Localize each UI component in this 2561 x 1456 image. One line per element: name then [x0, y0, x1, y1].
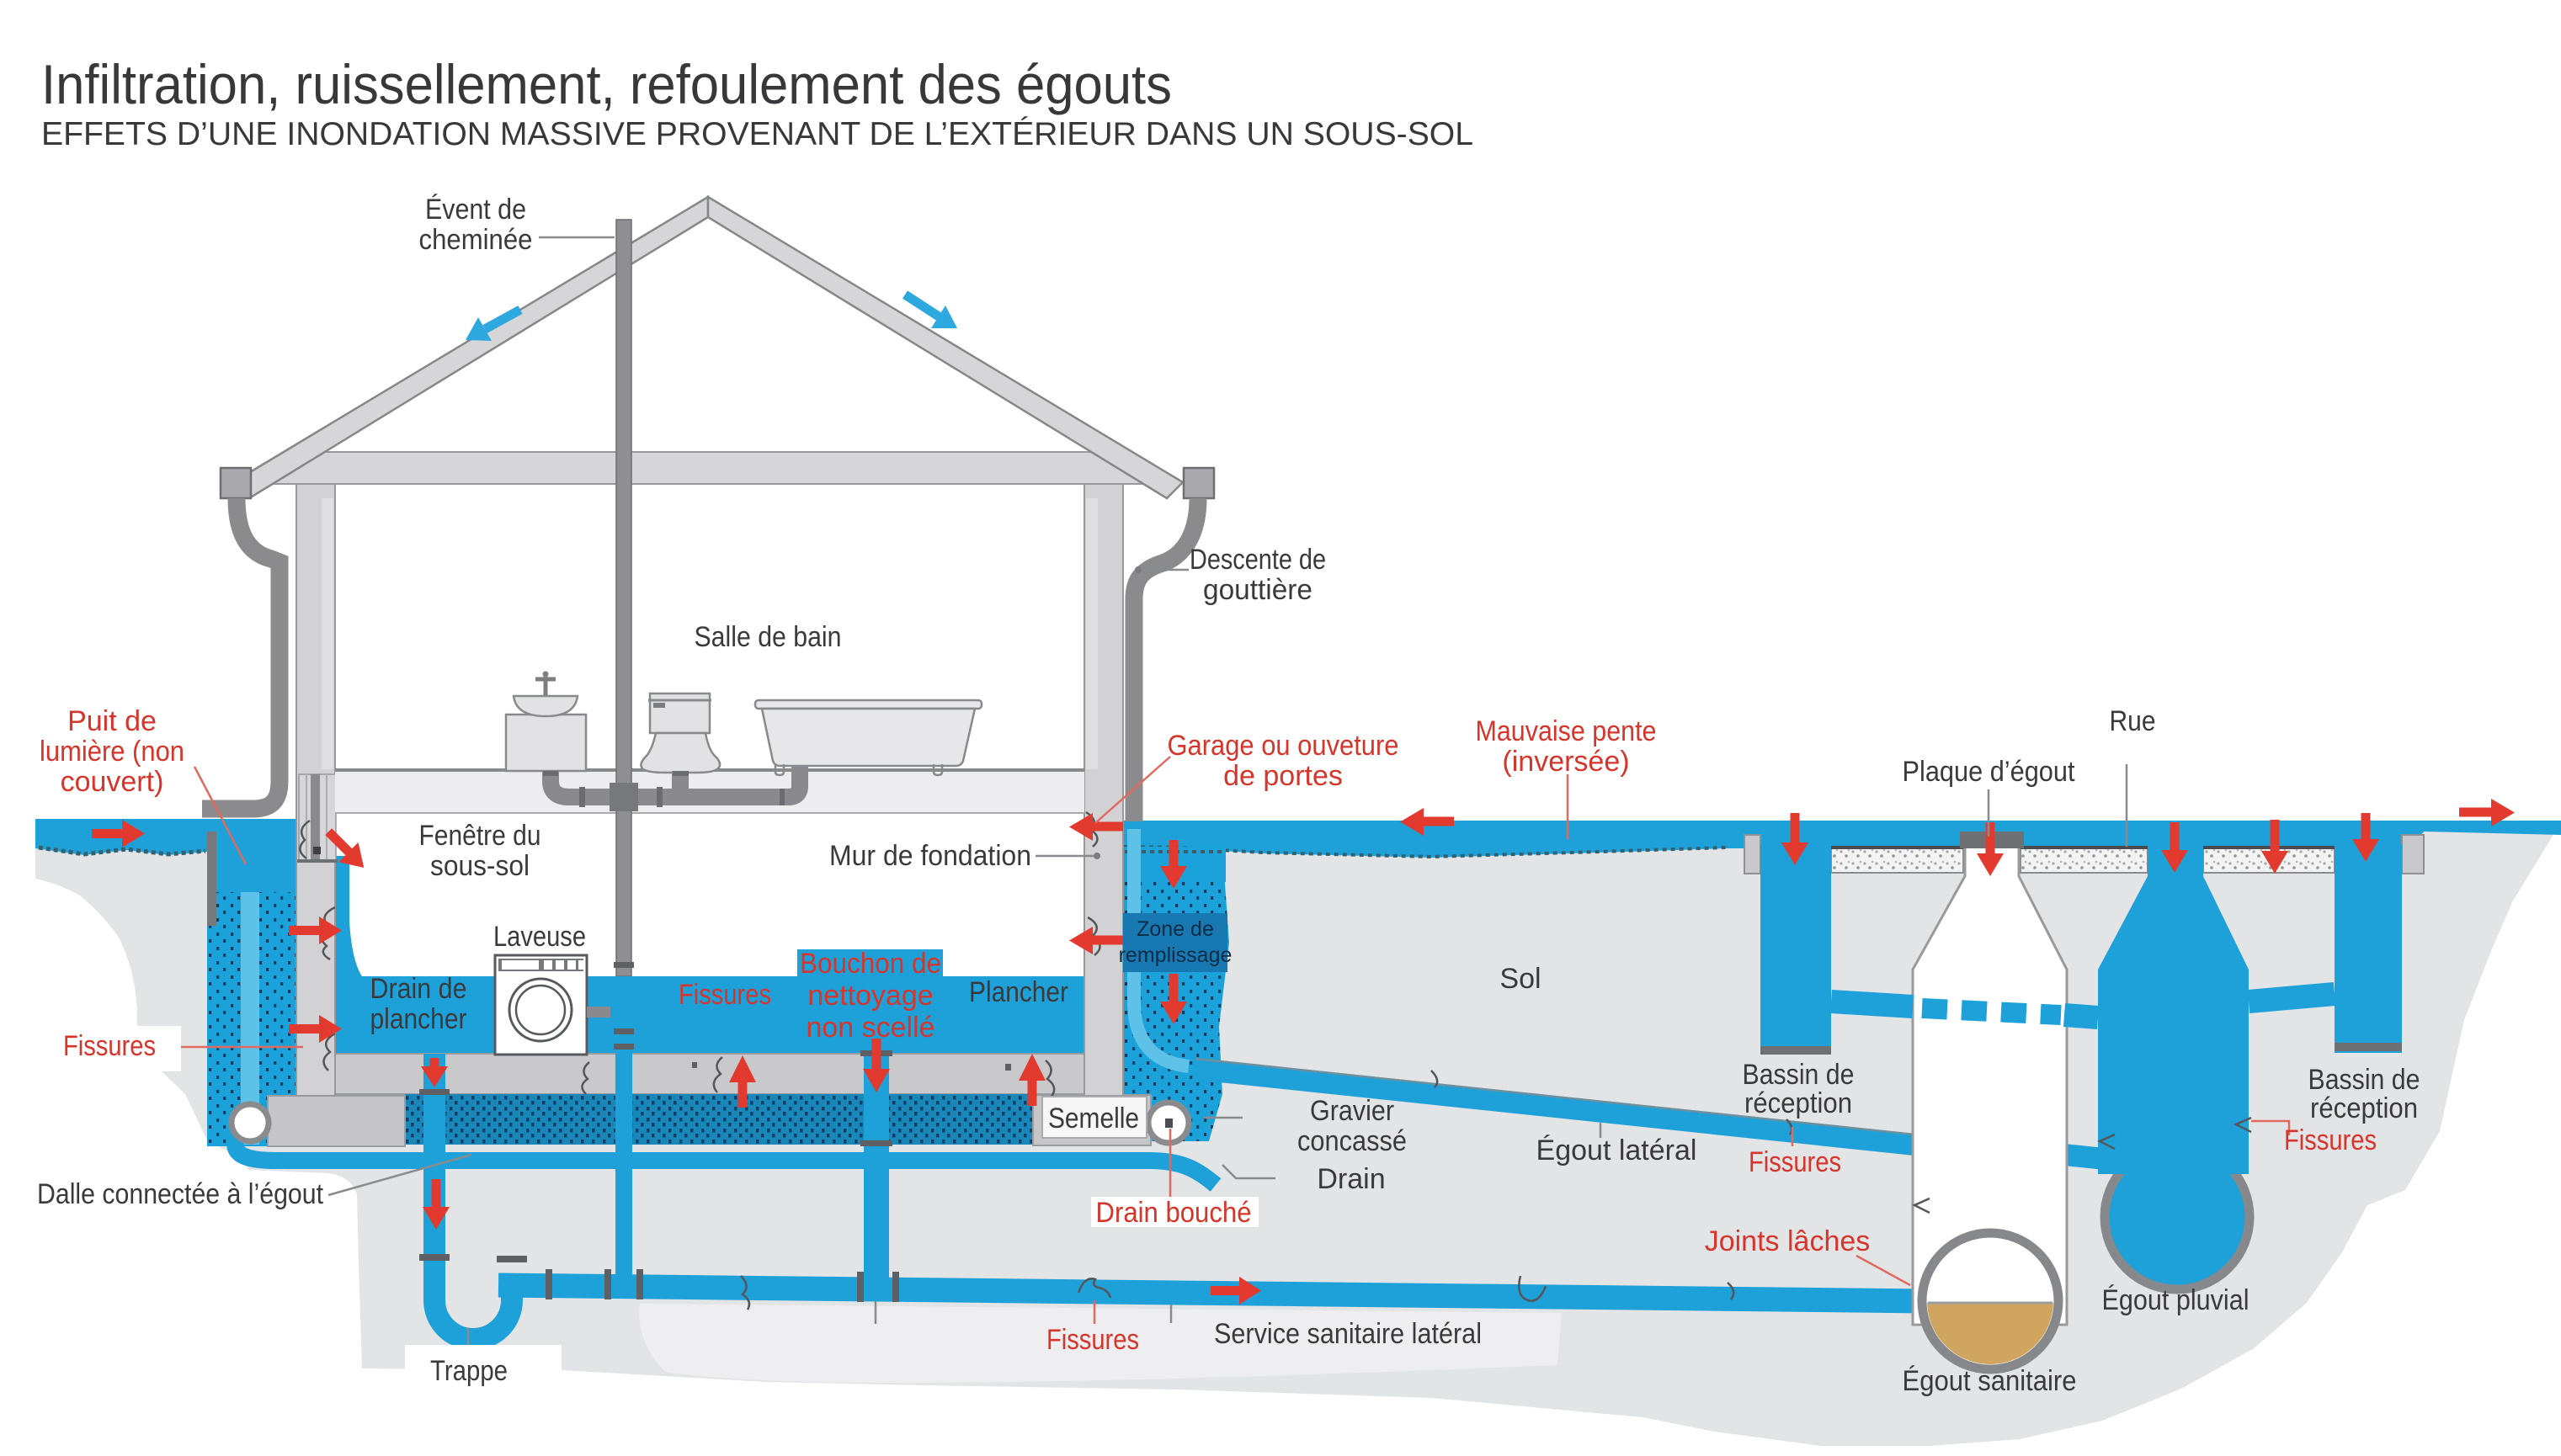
svg-text:Infiltration, ruissellement, r: Infiltration, ruissellement, refoulement… — [41, 53, 1172, 115]
svg-text:Évent de: Évent de — [425, 194, 526, 226]
svg-text:Bouchon de: Bouchon de — [800, 948, 941, 980]
svg-text:Descente de: Descente de — [1190, 544, 1326, 576]
svg-text:plancher: plancher — [370, 1003, 467, 1035]
svg-text:réception: réception — [1744, 1087, 1852, 1119]
svg-text:gouttière: gouttière — [1203, 574, 1312, 606]
svg-text:Drain bouché: Drain bouché — [1096, 1197, 1252, 1229]
svg-text:lumière (non: lumière (non — [40, 736, 184, 768]
svg-text:Rue: Rue — [2110, 705, 2156, 737]
svg-text:Fissures: Fissures — [1046, 1324, 1139, 1356]
svg-text:de portes: de portes — [1223, 760, 1343, 792]
svg-text:sous-sol: sous-sol — [430, 850, 530, 882]
svg-text:Bassin de: Bassin de — [2308, 1064, 2420, 1096]
svg-text:Laveuse: Laveuse — [493, 921, 586, 953]
svg-text:Zone de: Zone de — [1137, 917, 1214, 941]
svg-text:Fissures: Fissures — [1749, 1146, 1841, 1178]
svg-text:Fenêtre du: Fenêtre du — [419, 820, 541, 852]
svg-text:Égout sanitaire: Égout sanitaire — [1903, 1365, 2077, 1397]
svg-text:Égout pluvial: Égout pluvial — [2102, 1284, 2250, 1316]
svg-text:Sol: Sol — [1499, 963, 1541, 995]
svg-text:(inversée): (inversée) — [1502, 746, 1629, 778]
svg-text:Garage ou ouveture: Garage ou ouveture — [1168, 730, 1399, 762]
svg-text:Fissures: Fissures — [63, 1030, 156, 1062]
svg-text:Plancher: Plancher — [969, 976, 1068, 1008]
svg-text:concassé: concassé — [1297, 1125, 1407, 1157]
svg-text:Puit de: Puit de — [67, 705, 157, 737]
svg-text:Fissures: Fissures — [679, 979, 771, 1011]
svg-text:Gravier: Gravier — [1310, 1095, 1394, 1127]
svg-text:Salle de bain: Salle de bain — [695, 621, 842, 653]
svg-text:Joints lâches: Joints lâches — [1705, 1225, 1871, 1257]
svg-text:cheminée: cheminée — [419, 224, 533, 256]
svg-text:Égout latéral: Égout latéral — [1536, 1135, 1697, 1166]
svg-text:Drain: Drain — [1317, 1163, 1385, 1195]
svg-text:Trappe: Trappe — [430, 1355, 508, 1387]
svg-text:réception: réception — [2310, 1092, 2418, 1124]
svg-text:Fissures: Fissures — [2284, 1124, 2377, 1156]
svg-text:Service sanitaire latéral: Service sanitaire latéral — [1214, 1318, 1482, 1350]
svg-text:Bassin de: Bassin de — [1743, 1059, 1855, 1091]
svg-text:Semelle: Semelle — [1048, 1103, 1139, 1135]
svg-text:Plaque d’égout: Plaque d’égout — [1903, 756, 2075, 788]
svg-text:Dalle connectée à l’égout: Dalle connectée à l’égout — [37, 1178, 323, 1210]
svg-text:nettoyage: nettoyage — [807, 980, 933, 1012]
svg-text:couvert): couvert) — [61, 766, 164, 798]
svg-text:EFFETS D’UNE INONDATION MASSIV: EFFETS D’UNE INONDATION MASSIVE PROVENAN… — [41, 116, 1473, 152]
svg-text:Mur de fondation: Mur de fondation — [829, 840, 1031, 872]
svg-text:Mauvaise pente: Mauvaise pente — [1476, 715, 1657, 747]
svg-text:remplissage: remplissage — [1119, 943, 1233, 967]
svg-text:Drain de: Drain de — [370, 973, 467, 1005]
svg-text:non scellé: non scellé — [806, 1012, 934, 1044]
